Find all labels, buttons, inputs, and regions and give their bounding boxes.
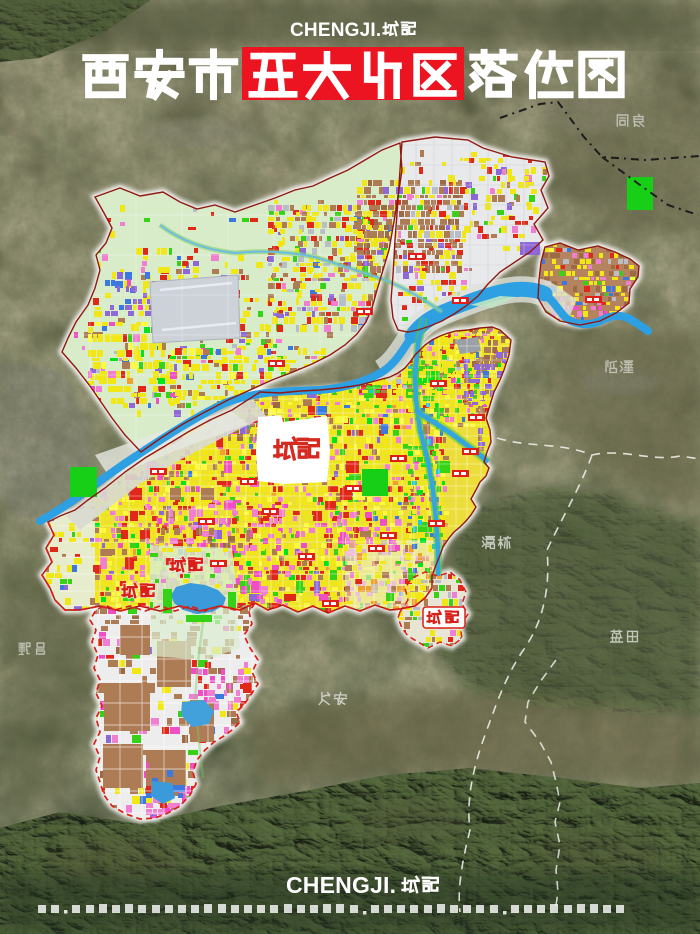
svg-text:CHENGJI.: CHENGJI. bbox=[286, 872, 396, 898]
svg-text:CHENGJI.: CHENGJI. bbox=[290, 20, 381, 41]
